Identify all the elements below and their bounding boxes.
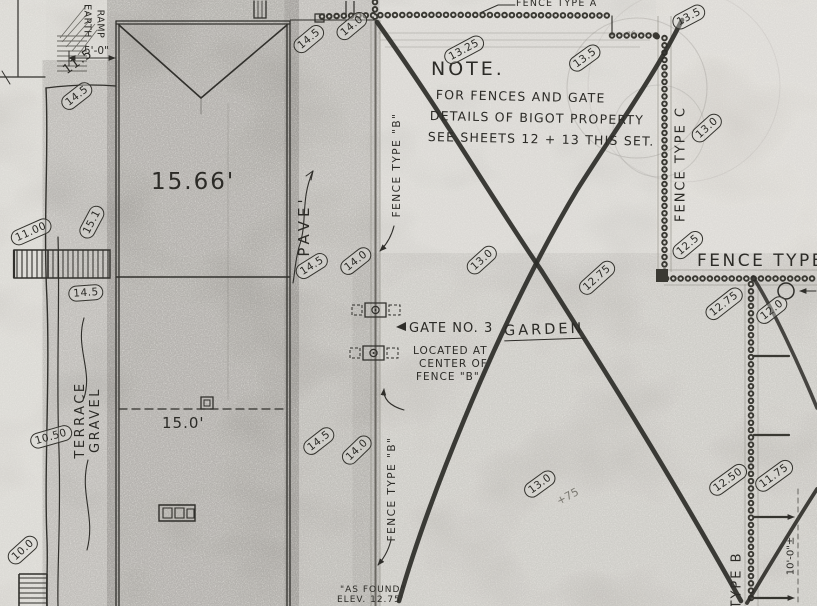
gravel-label-line: GRAVEL <box>88 381 103 458</box>
plan-drawing-layer <box>0 0 817 606</box>
roof-dimension: 15.66' <box>151 169 235 195</box>
fence-type-c-label: FENCE TYPE C <box>674 106 689 222</box>
type-b-bottom-label: TYPE B <box>730 552 745 606</box>
pencil-note-76: 76 <box>625 29 637 40</box>
gate-note-line-3: CENTER OF <box>419 358 488 370</box>
fence-type-b-upper-label: FENCE TYPE "B" <box>391 113 403 218</box>
terrace-label-line: TERRACE <box>73 381 88 458</box>
fence-type-b-lower-label: FENCE TYPE "B" <box>386 437 398 542</box>
fence-type-right-label: FENCE TYPE <box>697 251 817 271</box>
site-plan-sheet: FENCE TYPE A NOTE. FOR FENCES AND GATE D… <box>0 0 817 606</box>
earth-label: EARTH <box>82 4 93 38</box>
as-found-line-1: "AS FOUND" <box>340 585 406 595</box>
elevation-marker: 14.5 <box>68 284 104 303</box>
as-found-line-2: ELEV. 12.75' <box>337 595 404 605</box>
pave-label: PAVE' <box>295 195 313 256</box>
bay-dimension: 15.0' <box>162 414 205 432</box>
garden-label: GARDEN <box>504 321 585 342</box>
ramp-label: RAMP <box>95 10 106 39</box>
note-title: NOTE. <box>431 58 505 80</box>
terrace-gravel-label: TERRACE GRAVEL <box>73 381 103 458</box>
gate-note-line-1: GATE NO. 3 <box>409 321 493 336</box>
gate-note-line-4: FENCE "B" <box>416 371 480 383</box>
fence-type-a-label: FENCE TYPE A <box>516 0 598 9</box>
offset-dimension: 10'-0"± <box>786 537 797 575</box>
gate-note-line-2: LOCATED AT <box>413 345 488 357</box>
